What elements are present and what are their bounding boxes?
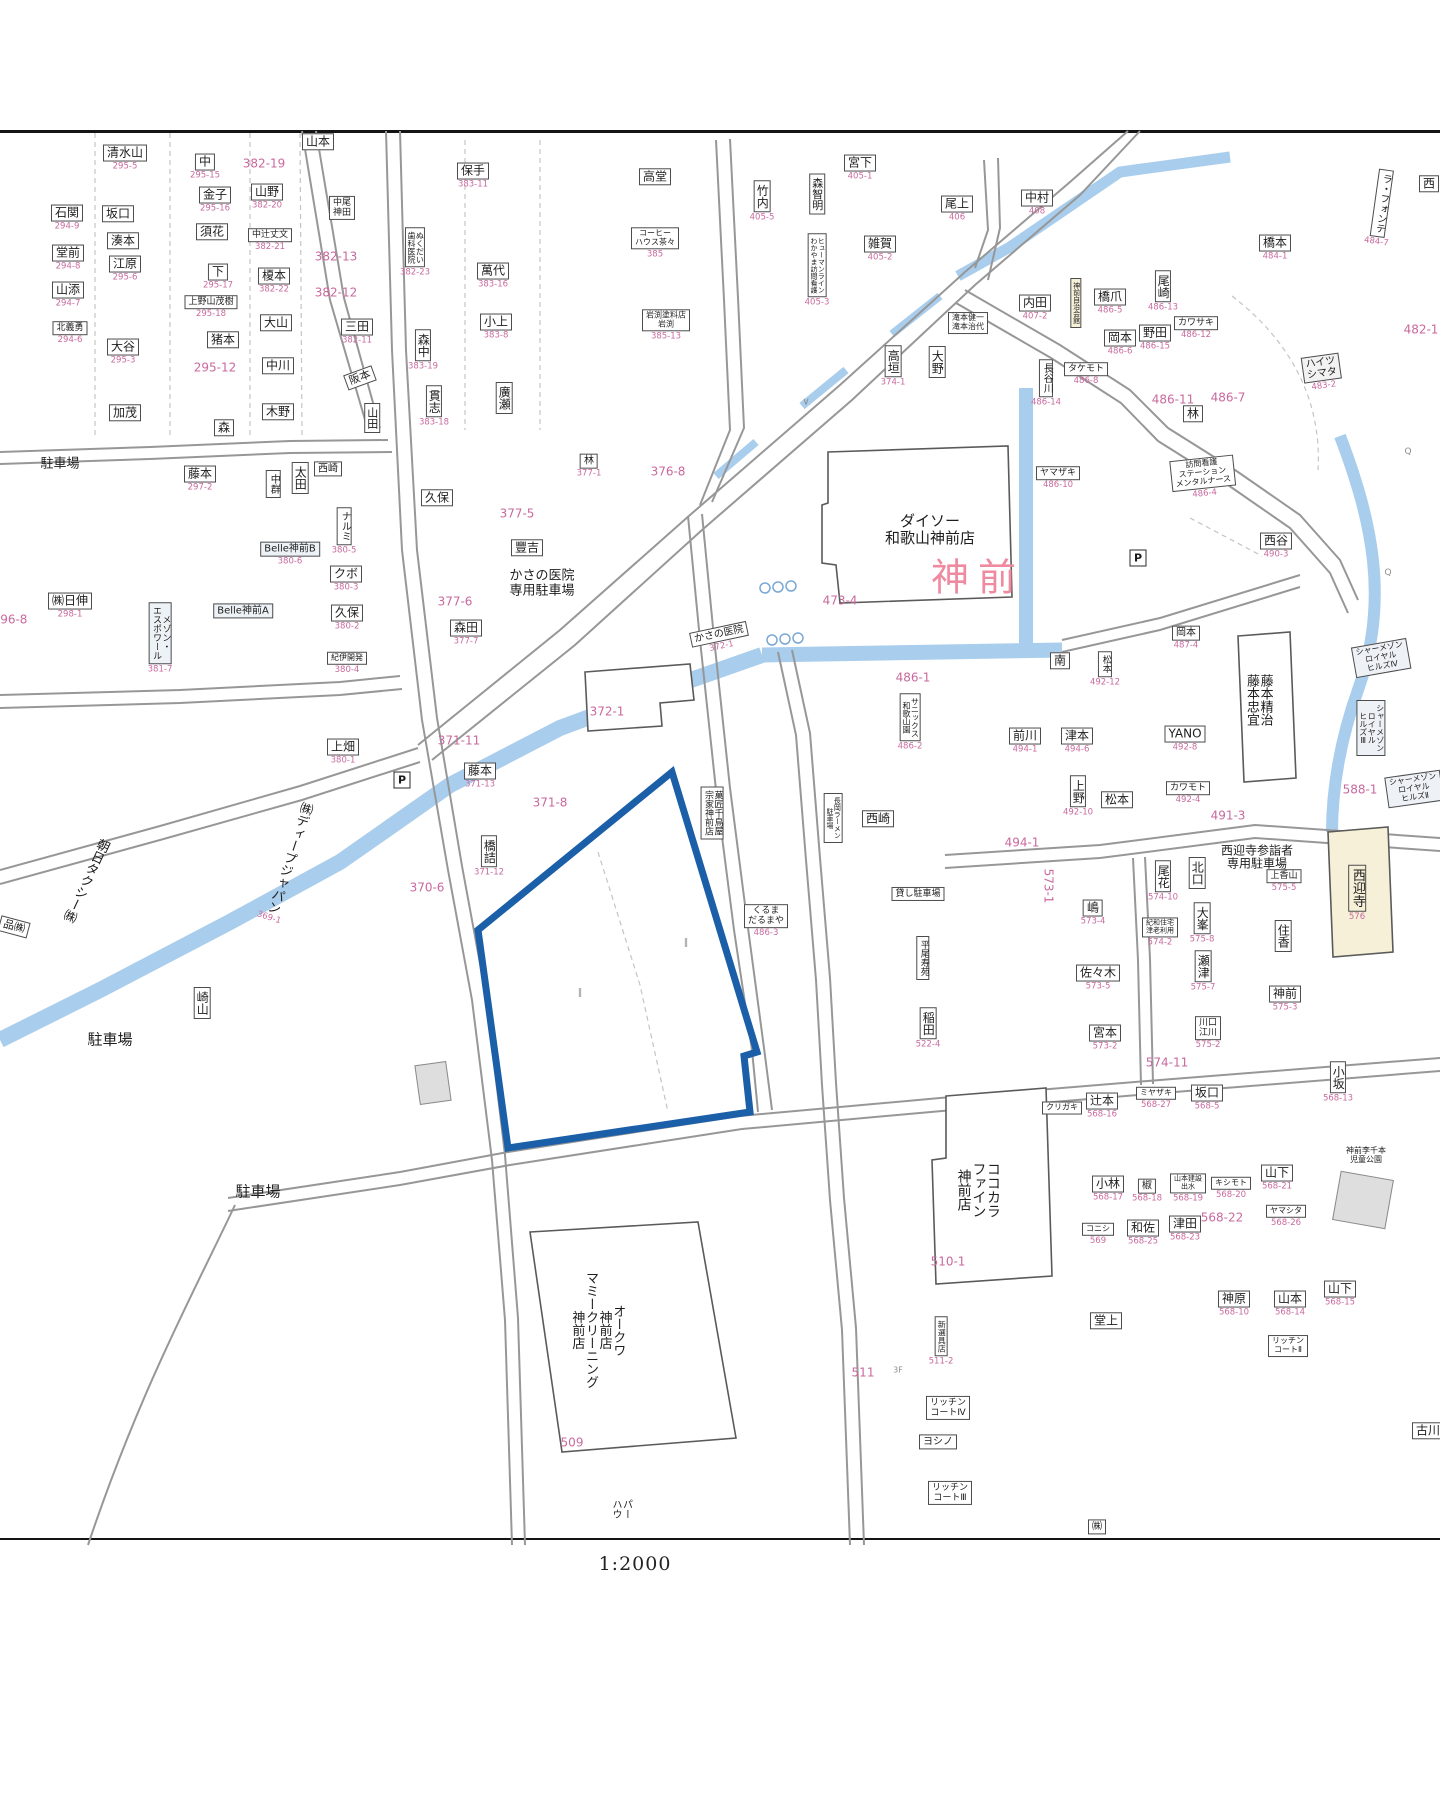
cocokara-building bbox=[932, 1088, 1052, 1284]
bridge-icons bbox=[760, 581, 803, 645]
map-canvas bbox=[0, 0, 1440, 1799]
parking-icon: P bbox=[394, 772, 411, 789]
temple-building bbox=[1328, 827, 1393, 957]
map-scale-label: 1:2000 bbox=[555, 1553, 715, 1575]
gray-building-block bbox=[414, 1061, 451, 1105]
roads bbox=[0, 131, 1440, 1545]
waterways bbox=[0, 157, 1375, 1040]
okuwa-building bbox=[530, 1222, 736, 1452]
gray-building-block bbox=[1332, 1171, 1394, 1230]
daiso-building bbox=[822, 446, 1012, 603]
parcel-dashes bbox=[95, 133, 1318, 1112]
parking-icon: P bbox=[1130, 550, 1147, 567]
building-footprints bbox=[530, 446, 1393, 1452]
cadastral-map-page: 清水山295-5山本石関294-9坂口湊本堂前294-8江原295-6山添294… bbox=[0, 0, 1440, 1799]
subject-parcel-outline[interactable] bbox=[478, 772, 757, 1148]
